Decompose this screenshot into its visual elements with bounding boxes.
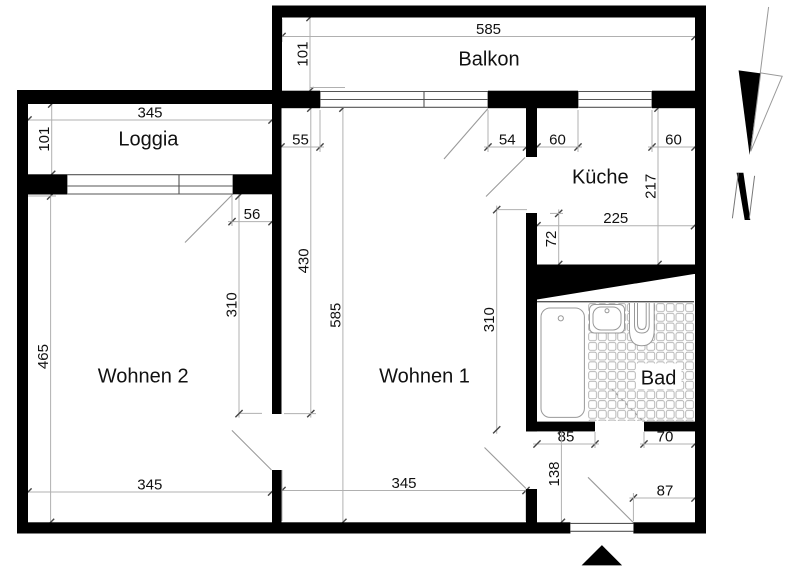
svg-text:55: 55 [292,132,309,149]
svg-text:310: 310 [481,307,498,332]
svg-text:Bad: Bad [641,368,677,390]
svg-text:Loggia: Loggia [118,129,179,151]
svg-text:465: 465 [35,344,52,369]
svg-text:Wohnen 2: Wohnen 2 [98,365,189,387]
svg-text:Balkon: Balkon [458,48,519,70]
svg-text:585: 585 [476,21,501,38]
svg-text:72: 72 [543,231,560,248]
svg-text:56: 56 [244,206,261,223]
svg-text:60: 60 [549,132,566,149]
svg-text:101: 101 [36,127,53,152]
svg-text:101: 101 [295,42,312,67]
svg-text:Küche: Küche [572,167,629,189]
svg-text:87: 87 [657,483,674,500]
svg-text:217: 217 [643,174,660,199]
svg-text:430: 430 [295,248,312,273]
svg-text:310: 310 [224,292,241,317]
svg-text:585: 585 [327,303,344,328]
svg-text:60: 60 [665,132,682,149]
svg-text:345: 345 [391,475,416,492]
svg-text:345: 345 [137,105,162,122]
svg-text:Wohnen 1: Wohnen 1 [379,365,470,387]
svg-text:345: 345 [137,477,162,494]
svg-text:54: 54 [499,132,516,149]
svg-text:138: 138 [546,461,563,486]
svg-text:225: 225 [603,210,628,227]
